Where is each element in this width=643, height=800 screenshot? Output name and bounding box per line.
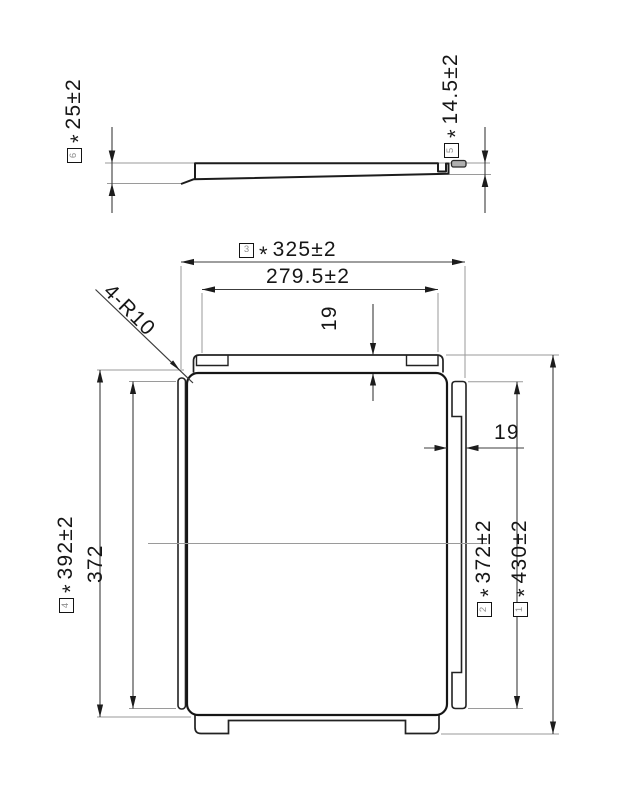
dim-value-19-top: 19 xyxy=(319,305,341,331)
right-strip-outline xyxy=(452,382,466,709)
balloon-3: 3 xyxy=(239,243,254,258)
dim-value-14_5: 14.5±2 xyxy=(440,53,462,124)
technical-drawing-page: 6 * 25±2 5 * 14.5±2 3 * 325±2 279.5±2 19… xyxy=(0,0,643,800)
dim-arrow xyxy=(482,175,489,188)
dim-value-19-right: 19 xyxy=(494,422,520,444)
dim-arrow xyxy=(130,696,136,709)
part-profile-outline xyxy=(181,163,449,184)
dim-arrow xyxy=(370,343,376,355)
dim-label-430: 1 * 430±2 xyxy=(509,519,531,617)
dim-arrow xyxy=(181,259,194,265)
dim-label-19-top: 19 xyxy=(319,305,341,331)
top-flange-outline xyxy=(194,355,444,373)
dim-arrow xyxy=(514,382,520,395)
balloon-4: 4 xyxy=(59,598,74,613)
dim-arrow xyxy=(452,259,465,265)
dim-value-25: 25±2 xyxy=(63,78,85,129)
dim-label-392: 4 * 392±2 xyxy=(55,515,77,613)
dim-arrow xyxy=(109,184,116,197)
dim-arrow xyxy=(97,705,103,718)
dim-arrow xyxy=(466,445,479,451)
dim-value-392: 392±2 xyxy=(55,515,77,579)
dim-value-430: 430±2 xyxy=(509,519,531,583)
dim-arrow xyxy=(97,370,103,383)
dim-arrow xyxy=(550,722,556,735)
dim-arrow xyxy=(514,696,520,709)
dim-label-325: 3 * 325±2 xyxy=(239,239,337,261)
dim-arrow xyxy=(130,382,136,395)
bottom-flange-outline xyxy=(195,714,439,734)
balloon-6: 6 xyxy=(67,148,82,163)
drawing-canvas xyxy=(0,0,643,800)
dim-arrow xyxy=(202,286,215,292)
balloon-2: 2 xyxy=(477,602,492,617)
dim-arrow xyxy=(482,151,489,164)
rubber-pad-side xyxy=(452,161,467,168)
dim-label-14_5: 5 * 14.5±2 xyxy=(440,53,462,158)
dim-label-25: 6 * 25±2 xyxy=(63,78,85,163)
asterisk: * xyxy=(445,129,467,138)
asterisk: * xyxy=(60,584,82,593)
asterisk: * xyxy=(478,588,500,597)
asterisk: * xyxy=(259,244,268,266)
dim-label-372-left: 372 xyxy=(85,544,107,583)
dim-arrow xyxy=(109,151,116,164)
dim-label-19-right: 19 xyxy=(494,422,520,444)
asterisk: * xyxy=(68,134,90,143)
dim-label-372-right: 2 * 372±2 xyxy=(473,519,495,617)
dim-label-279_5: 279.5±2 xyxy=(266,266,350,288)
asterisk: * xyxy=(514,588,536,597)
dim-value-325: 325±2 xyxy=(273,239,337,261)
dim-arrow xyxy=(425,286,438,292)
balloon-1: 1 xyxy=(513,602,528,617)
dim-value-372-left: 372 xyxy=(85,544,107,583)
side-view xyxy=(105,127,491,213)
dim-value-279_5: 279.5±2 xyxy=(266,266,350,288)
dim-value-372-right: 372±2 xyxy=(473,519,495,583)
balloon-5: 5 xyxy=(444,143,459,158)
dim-arrow xyxy=(550,355,556,368)
